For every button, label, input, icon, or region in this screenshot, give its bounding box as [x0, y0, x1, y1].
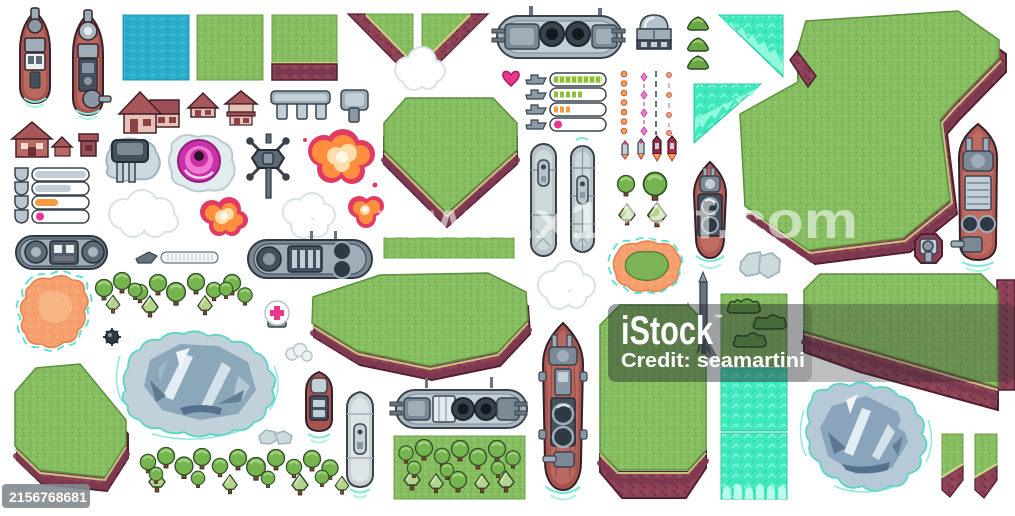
svg-text:iStock: iStock	[621, 309, 714, 353]
svg-text:www.x123rf.com: www.x123rf.com	[377, 192, 858, 250]
svg-text:Credit: seamartini: Credit: seamartini	[621, 350, 805, 372]
svg-text:™: ™	[714, 313, 723, 323]
svg-text:2156768681: 2156768681	[9, 489, 87, 505]
